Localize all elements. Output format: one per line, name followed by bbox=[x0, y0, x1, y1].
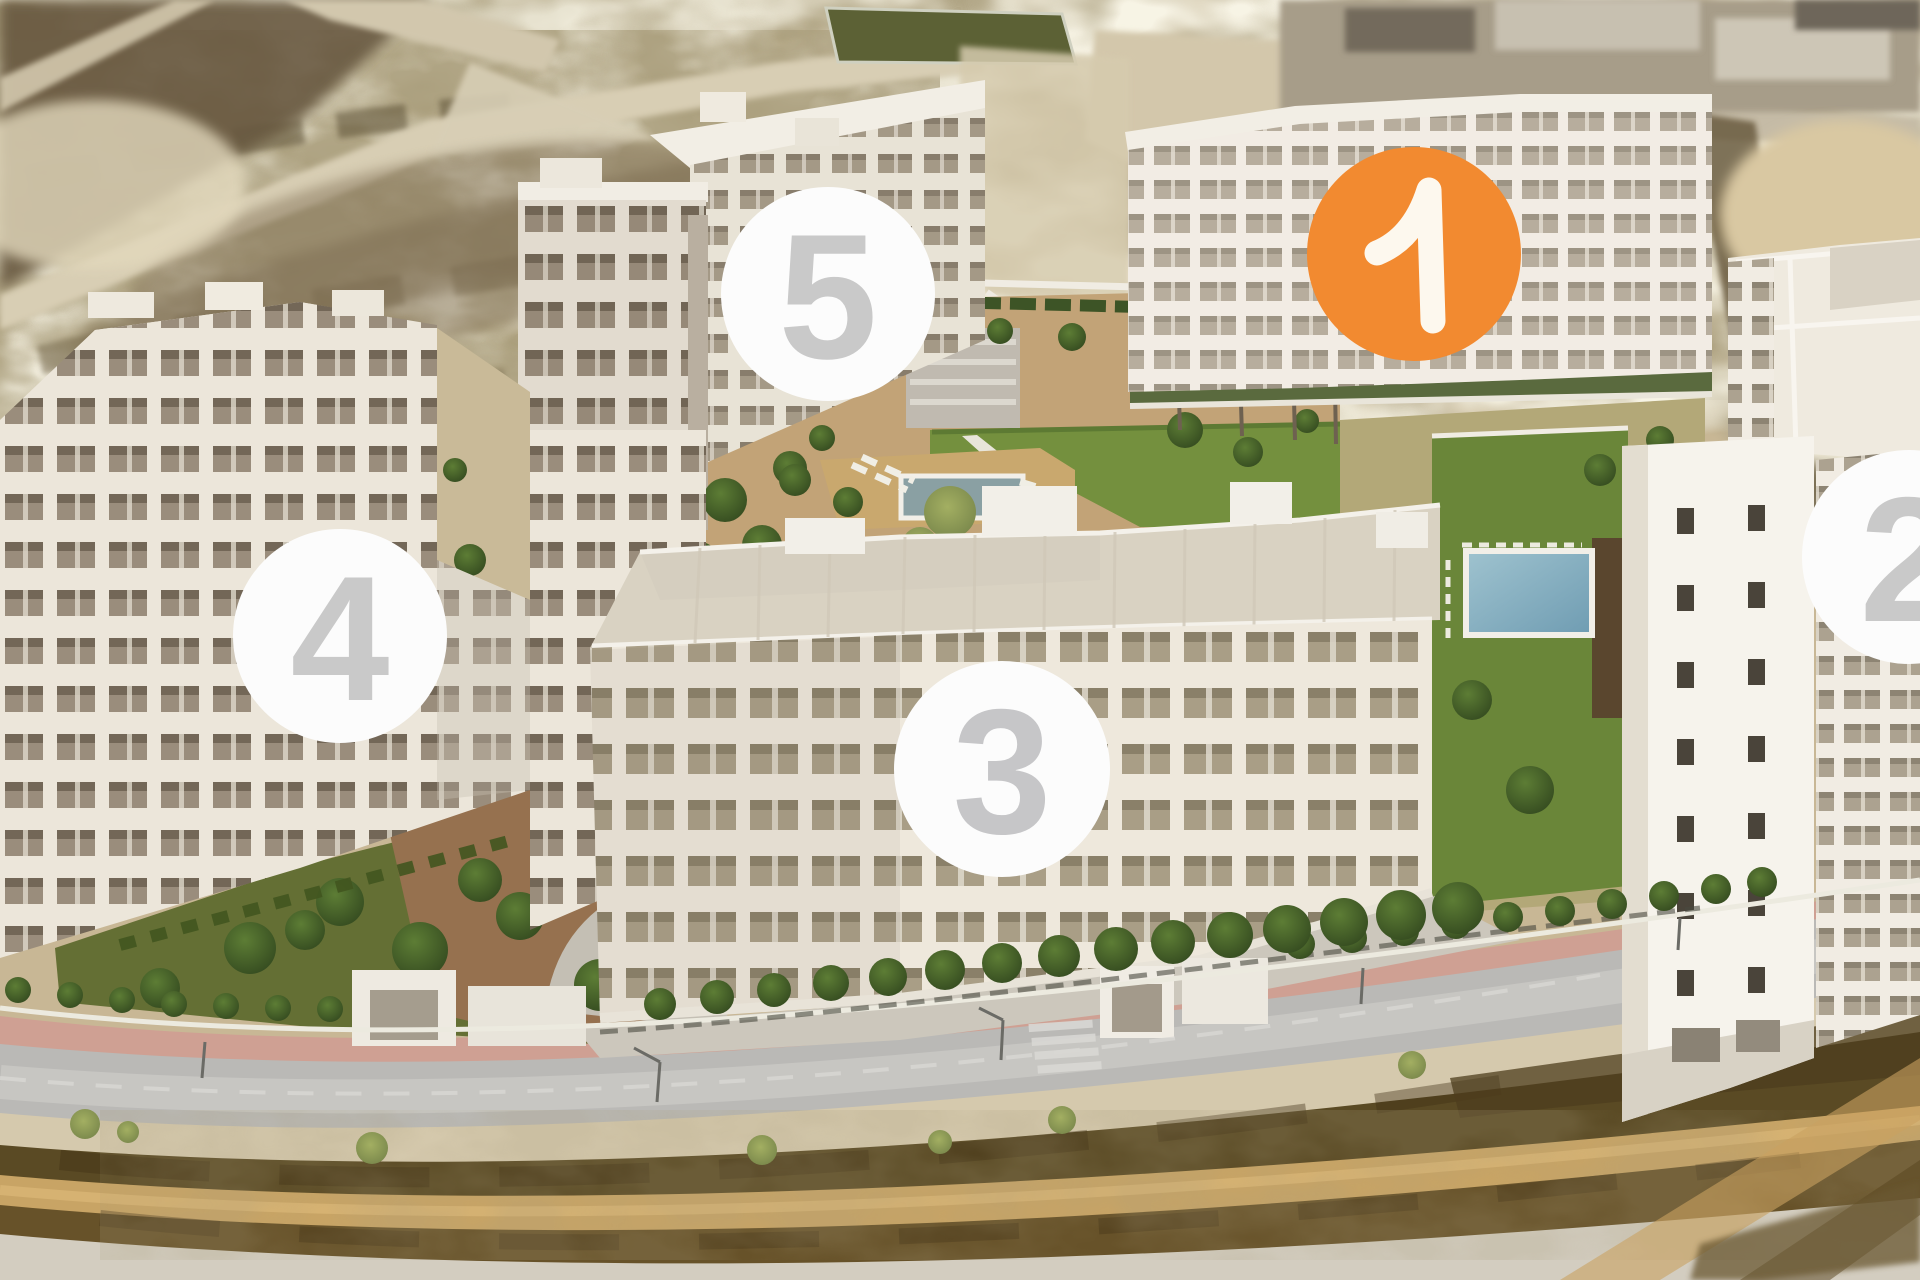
svg-text:3: 3 bbox=[953, 672, 1052, 871]
svg-text:5: 5 bbox=[779, 197, 878, 396]
svg-text:2: 2 bbox=[1860, 460, 1920, 659]
svg-text:4: 4 bbox=[291, 539, 390, 738]
